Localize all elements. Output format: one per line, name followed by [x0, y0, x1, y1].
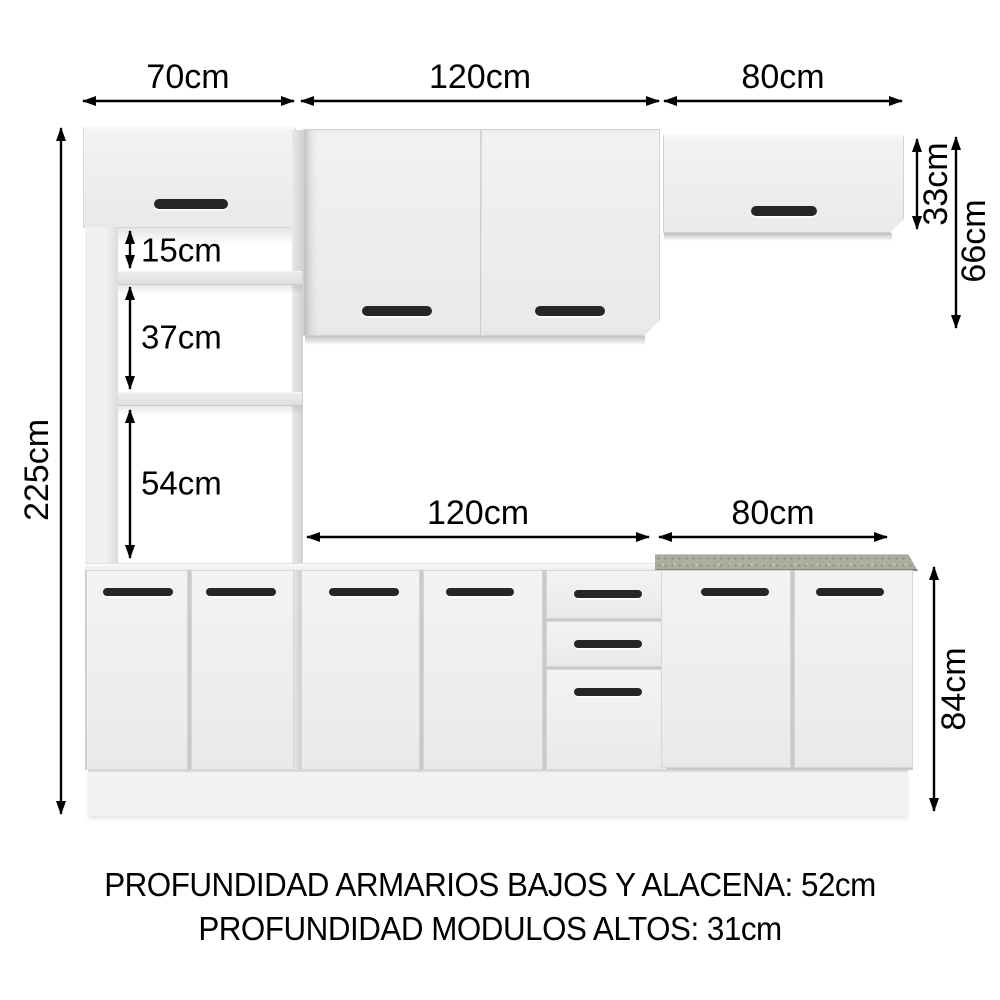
plinth [88, 770, 908, 816]
wall-cabinet-120-left-handle-icon [362, 306, 432, 316]
dim-label-gap-54cm: 54cm [141, 467, 222, 500]
tower-top-door-handle-icon [154, 199, 228, 209]
wall-cabinet-120-door-divider [480, 130, 483, 335]
base-door-6 [794, 570, 913, 768]
footer-depth-note-2: PROFUNDIDAD MODULOS ALTOS: 31cm [25, 912, 956, 945]
tower-shelf-2 [118, 392, 302, 406]
dim-label-top-70cm: 70cm [146, 60, 229, 94]
base-door-4-handle-icon [446, 588, 514, 596]
dim-label-right-66cm: 66cm [957, 199, 991, 282]
base-door-5 [661, 570, 791, 768]
base-drawer-3-handle-icon [574, 688, 642, 696]
base-cabinet-body [85, 570, 913, 770]
footer-depth-note-1: PROFUNDIDAD ARMARIOS BAJOS Y ALACENA: 52… [25, 868, 956, 901]
base-door-5-handle-icon [701, 588, 769, 596]
dim-label-right-33cm: 33cm [919, 142, 953, 225]
tower-left-side-panel [85, 227, 118, 564]
base-door-1 [86, 570, 188, 770]
dim-label-total-225cm: 225cm [20, 419, 54, 521]
wall-cabinet-120-right-handle-icon [535, 306, 605, 316]
wall-cabinet-120-shadow [305, 336, 645, 345]
base-door-6-handle-icon [816, 588, 884, 596]
wall-cabinet-80-handle-icon [751, 206, 817, 216]
tower-top-door [83, 126, 296, 228]
dim-label-gap-15cm: 15cm [141, 234, 222, 267]
base-door-3 [301, 570, 420, 770]
tower-shelf-2-shadow [118, 405, 302, 415]
dim-label-gap-37cm: 37cm [141, 321, 222, 354]
base-door-1-handle-icon [103, 588, 173, 596]
wall-cabinet-120 [303, 129, 660, 336]
wall-cabinet-80-shadow [664, 233, 892, 241]
base-drawer-2-handle-icon [574, 640, 642, 648]
tower-right-side-panel [292, 130, 303, 564]
base-door-2 [191, 570, 294, 770]
base-door-4 [423, 570, 543, 770]
base-door-2-handle-icon [206, 588, 276, 596]
dim-label-mid-120cm: 120cm [427, 496, 529, 530]
base-mid-panel [294, 570, 301, 770]
countertop [655, 554, 918, 571]
wall-cabinet-80 [663, 134, 904, 233]
dim-label-top-80cm: 80cm [741, 60, 824, 94]
base-door-3-handle-icon [329, 588, 399, 596]
tower-shelf-1 [118, 271, 302, 285]
dim-label-top-120cm: 120cm [429, 60, 531, 94]
dim-label-mid-80cm: 80cm [731, 496, 814, 530]
kitchen-dimension-diagram: 70cm 120cm 80cm 120cm 80cm 15cm 37cm 54c… [0, 0, 1000, 1000]
base-drawer-1-handle-icon [574, 590, 642, 598]
dim-label-right-84cm: 84cm [937, 647, 971, 730]
tower-shelf-1-shadow [118, 284, 302, 294]
base-drawer-3 [546, 669, 667, 770]
